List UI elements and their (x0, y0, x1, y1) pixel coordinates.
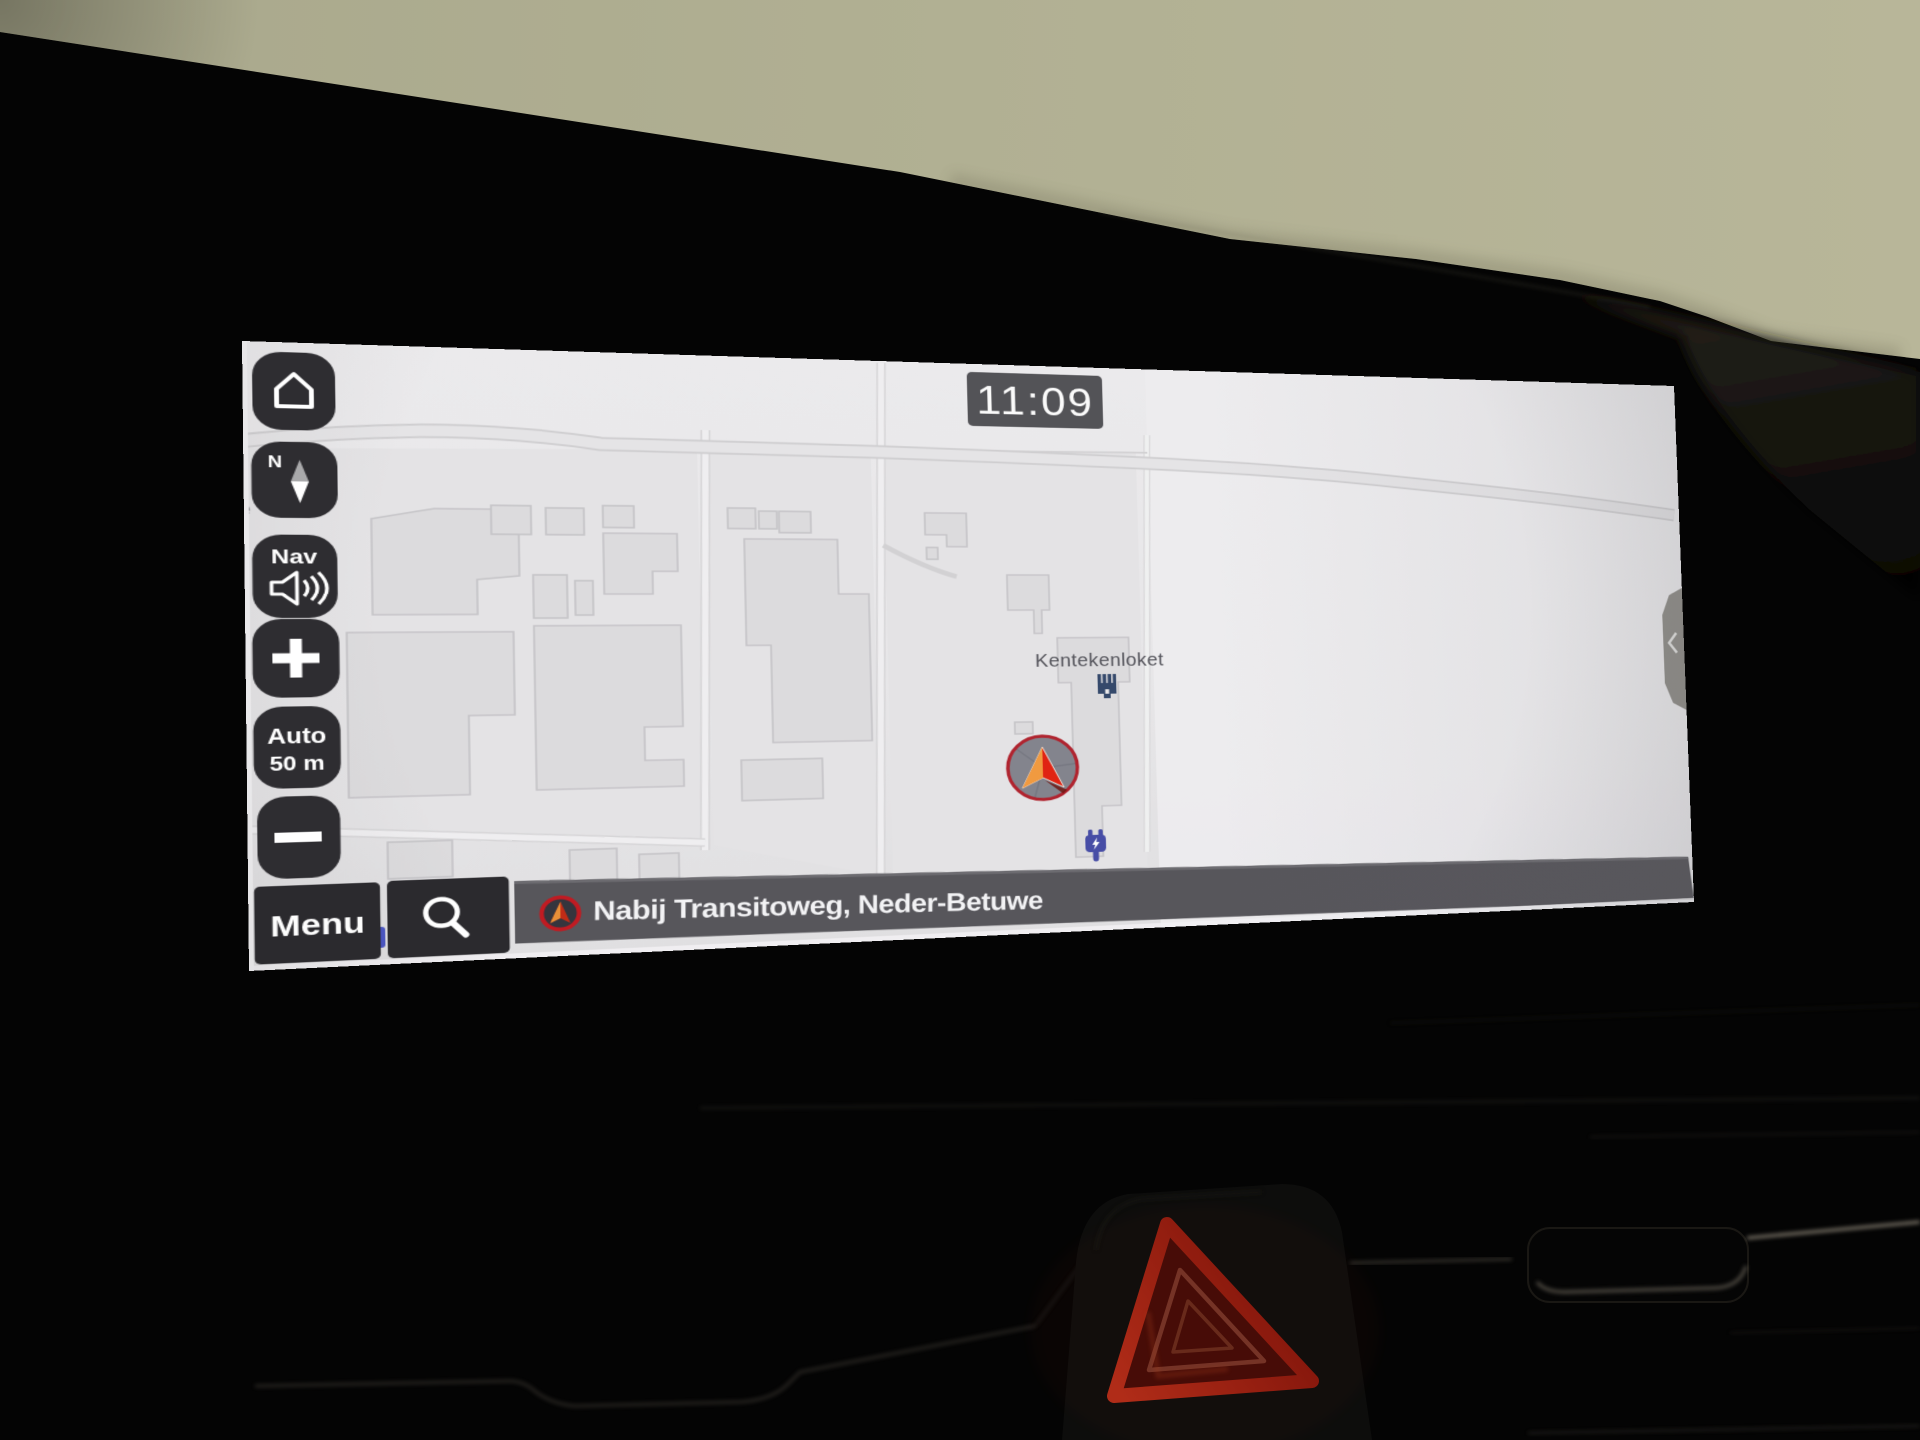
svg-text:Nav: Nav (271, 546, 319, 569)
svg-text:Menu: Menu (270, 906, 365, 944)
svg-text:50 m: 50 m (269, 752, 324, 775)
svg-text:Auto: Auto (267, 724, 327, 749)
svg-text:N: N (268, 452, 283, 471)
